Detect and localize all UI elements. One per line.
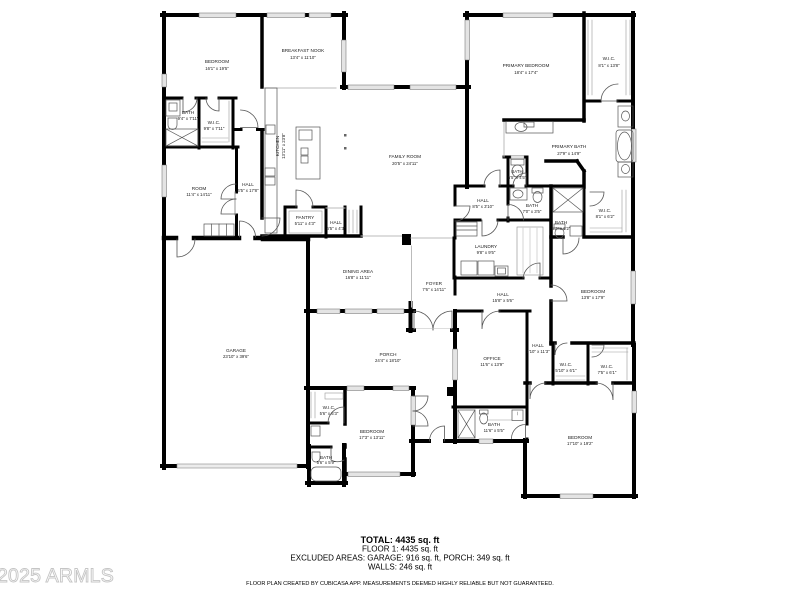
svg-text:WALLS: 246 sq. ft: WALLS: 246 sq. ft — [368, 563, 433, 572]
svg-text:FLOOR 1: 4435 sq. ft: FLOOR 1: 4435 sq. ft — [362, 545, 439, 554]
svg-text:2025 ARMLS: 2025 ARMLS — [0, 565, 114, 587]
svg-text:5'6" x 5'9": 5'6" x 5'9" — [317, 460, 336, 465]
svg-text:EXCLUDED AREAS: GARAGE: 916 sq: EXCLUDED AREAS: GARAGE: 916 sq. ft, PORC… — [290, 554, 510, 563]
svg-text:5'7" x 6'2": 5'7" x 6'2" — [552, 226, 571, 231]
svg-text:BATH: BATH — [511, 169, 522, 174]
svg-text:4'5" x 17'8": 4'5" x 17'8" — [237, 188, 259, 193]
svg-text:9'8" x 9'5": 9'8" x 9'5" — [477, 250, 496, 255]
svg-text:PANTRY: PANTRY — [296, 215, 315, 220]
svg-text:7'10" x 11'3": 7'10" x 11'3" — [526, 349, 550, 354]
svg-text:HALL: HALL — [242, 182, 254, 187]
svg-text:FLOOR PLAN CREATED BY CUBICASA: FLOOR PLAN CREATED BY CUBICASA APP. MEAS… — [246, 581, 554, 587]
svg-text:OFFICE: OFFICE — [483, 356, 500, 361]
svg-text:LAUNDRY: LAUNDRY — [475, 244, 498, 249]
svg-text:PRIMARY BATH: PRIMARY BATH — [552, 144, 587, 149]
svg-text:15'8" x 5'6": 15'8" x 5'6" — [492, 298, 514, 303]
svg-text:BEDROOM: BEDROOM — [205, 59, 229, 64]
svg-text:5'6" x 5'3": 5'6" x 5'3" — [320, 411, 339, 416]
svg-text:9'8" x 7'11": 9'8" x 7'11" — [204, 126, 225, 131]
svg-text:GARAGE: GARAGE — [226, 348, 246, 353]
svg-text:13'8" x 17'9": 13'8" x 17'9" — [581, 295, 605, 300]
svg-text:HALL: HALL — [532, 343, 544, 348]
svg-text:20'5" x 24'11": 20'5" x 24'11" — [392, 161, 418, 166]
svg-text:17'10" x 19'2": 17'10" x 19'2" — [567, 441, 593, 446]
svg-text:17'3" x 13'11": 17'3" x 13'11" — [359, 435, 385, 440]
svg-text:11'6" x 13'9": 11'6" x 13'9" — [480, 362, 504, 367]
svg-text:16'1" x 19'5": 16'1" x 19'5" — [205, 66, 229, 71]
svg-text:9'4" x 7'11": 9'4" x 7'11" — [178, 116, 199, 121]
svg-text:7'6" x 14'11": 7'6" x 14'11" — [422, 287, 446, 292]
svg-text:BATH: BATH — [488, 422, 500, 427]
svg-text:HALL: HALL — [330, 220, 342, 225]
svg-text:5'10" x 6'1": 5'10" x 6'1" — [555, 368, 577, 373]
svg-text:8'5" x 3'10": 8'5" x 3'10" — [472, 204, 494, 209]
svg-text:W.I.C.: W.I.C. — [208, 120, 221, 125]
svg-text:5'11" x 4'3": 5'11" x 4'3" — [295, 221, 316, 226]
svg-text:8'1" x 6'2": 8'1" x 6'2" — [596, 214, 615, 219]
svg-text:11'6" x 5'5": 11'6" x 5'5" — [484, 428, 505, 433]
svg-text:W.I.C.: W.I.C. — [603, 56, 616, 61]
svg-text:DINING AREA: DINING AREA — [343, 269, 374, 274]
svg-text:BEDROOM: BEDROOM — [568, 435, 592, 440]
svg-text:FOYER: FOYER — [426, 281, 443, 286]
svg-text:W.I.C.: W.I.C. — [601, 364, 614, 369]
svg-text:BREAKFAST NOOK: BREAKFAST NOOK — [282, 48, 326, 53]
svg-text:KITCHEN: KITCHEN — [275, 136, 280, 157]
svg-text:BEDROOM: BEDROOM — [581, 289, 605, 294]
svg-text:5'5" x 4'5": 5'5" x 4'5" — [508, 175, 527, 180]
svg-text:16'8" x 11'11": 16'8" x 11'11" — [345, 275, 371, 280]
svg-text:W.I.C.: W.I.C. — [599, 208, 612, 213]
svg-text:BATH: BATH — [182, 110, 194, 115]
svg-text:W.I.C.: W.I.C. — [323, 405, 336, 410]
svg-text:11'4" x 14'11": 11'4" x 14'11" — [186, 192, 212, 197]
svg-text:FAMILY ROOM: FAMILY ROOM — [389, 154, 421, 159]
svg-text:HALL: HALL — [497, 292, 509, 297]
svg-text:TOTAL: 4435 sq. ft: TOTAL: 4435 sq. ft — [361, 535, 440, 545]
svg-text:PRIMARY BEDROOM: PRIMARY BEDROOM — [503, 63, 550, 68]
svg-text:13'11" x 23'8": 13'11" x 23'8" — [281, 133, 286, 159]
svg-text:ROOM: ROOM — [192, 186, 207, 191]
svg-text:W.I.C.: W.I.C. — [560, 362, 573, 367]
svg-text:13'4" x 11'10": 13'4" x 11'10" — [290, 55, 316, 60]
svg-text:8'1" x 13'8": 8'1" x 13'8" — [598, 63, 620, 68]
svg-text:18'4" x 17'4": 18'4" x 17'4" — [514, 70, 538, 75]
svg-text:6'5" x 4'3": 6'5" x 4'3" — [327, 226, 346, 231]
svg-text:7'5" x 6'1": 7'5" x 6'1" — [598, 370, 617, 375]
svg-text:23'10" x 39'6": 23'10" x 39'6" — [223, 354, 249, 359]
svg-text:7'0" x 3'5": 7'0" x 3'5" — [523, 209, 542, 214]
svg-text:BATH: BATH — [555, 220, 567, 225]
svg-text:HALL: HALL — [477, 198, 489, 203]
svg-text:BATH: BATH — [526, 203, 538, 208]
svg-text:PORCH: PORCH — [380, 352, 397, 357]
svg-text:24'4" x 18'10": 24'4" x 18'10" — [375, 358, 401, 363]
svg-text:27'9" x 14'9": 27'9" x 14'9" — [557, 151, 581, 156]
svg-text:BEDROOM: BEDROOM — [360, 429, 384, 434]
